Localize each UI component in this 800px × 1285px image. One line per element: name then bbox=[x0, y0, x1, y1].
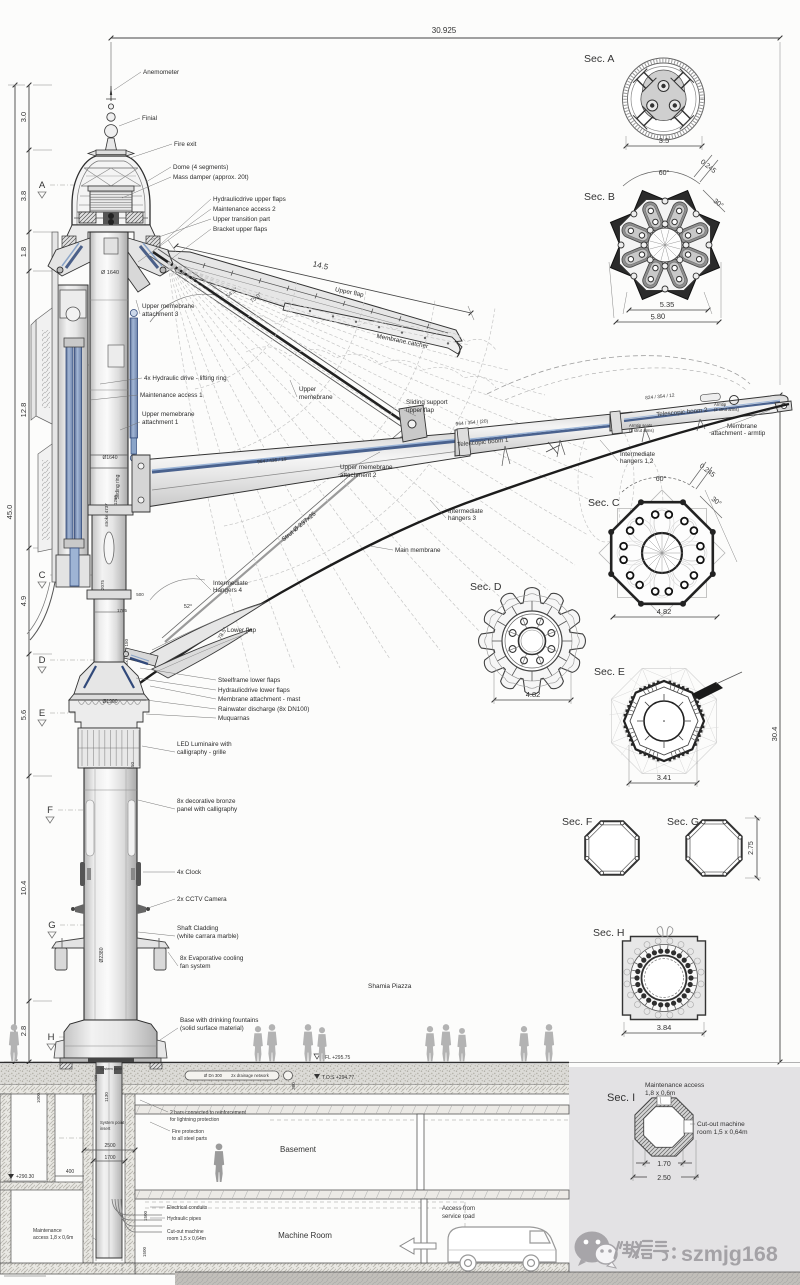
svg-text:45.0: 45.0 bbox=[5, 505, 14, 520]
svg-text:(2 strut arms): (2 strut arms) bbox=[629, 428, 654, 433]
svg-text:905: 905 bbox=[93, 1074, 98, 1081]
svg-text:2.8: 2.8 bbox=[19, 1026, 28, 1036]
svg-text:Upper memebrane: Upper memebrane bbox=[142, 303, 195, 310]
svg-text:Rainwater discharge (8x DN100): Rainwater discharge (8x DN100) bbox=[218, 706, 309, 713]
svg-text:attachment - armtip: attachment - armtip bbox=[711, 430, 766, 437]
svg-text:F: F bbox=[47, 805, 53, 816]
svg-text:Cut-out machine: Cut-out machine bbox=[167, 1229, 204, 1235]
svg-text:1500: 1500 bbox=[142, 1246, 147, 1257]
svg-text:10.4: 10.4 bbox=[19, 881, 28, 896]
svg-text:calligraphy - grille: calligraphy - grille bbox=[177, 749, 226, 756]
svg-text:2x drainage network: 2x drainage network bbox=[231, 1073, 270, 1078]
svg-text:room 1,5 x 0,64m: room 1,5 x 0,64m bbox=[167, 1236, 206, 1242]
svg-text:Shaft Cladding: Shaft Cladding bbox=[177, 925, 219, 932]
svg-text:fan system: fan system bbox=[180, 963, 210, 970]
svg-text:+290.30: +290.30 bbox=[16, 1174, 34, 1180]
svg-text:memebrane: memebrane bbox=[299, 394, 333, 401]
svg-text:insert: insert bbox=[100, 1126, 111, 1131]
svg-text:Hydraulicdrive upper flaps: Hydraulicdrive upper flaps bbox=[213, 196, 286, 203]
svg-text:4.82: 4.82 bbox=[526, 690, 541, 699]
svg-text:Hangers 4: Hangers 4 bbox=[213, 587, 243, 594]
svg-text:Sec. B: Sec. B bbox=[584, 191, 615, 203]
svg-text:12.8: 12.8 bbox=[19, 403, 28, 418]
svg-text:1,8 x 0,6m: 1,8 x 0,6m bbox=[645, 1090, 675, 1097]
svg-text:Upper: Upper bbox=[299, 386, 316, 393]
svg-text:60°: 60° bbox=[659, 169, 670, 177]
svg-text:52°: 52° bbox=[184, 604, 192, 610]
svg-text:5.35: 5.35 bbox=[660, 300, 675, 309]
svg-text:Steelframe lower flaps: Steelframe lower flaps bbox=[218, 677, 280, 684]
svg-text:panel with calligraphy: panel with calligraphy bbox=[177, 806, 238, 813]
svg-text:Maintenance access: Maintenance access bbox=[645, 1082, 705, 1089]
svg-text:Electrical conduits: Electrical conduits bbox=[167, 1205, 208, 1211]
svg-text:Hydraulicdrive lower flaps: Hydraulicdrive lower flaps bbox=[218, 687, 290, 694]
svg-text:attachment 2: attachment 2 bbox=[340, 472, 377, 479]
svg-text:stroke 4737: stroke 4737 bbox=[104, 503, 109, 527]
svg-text:2.50: 2.50 bbox=[657, 1175, 671, 1182]
svg-text:Maintenance access 2: Maintenance access 2 bbox=[213, 206, 276, 213]
svg-text:Lower flap: Lower flap bbox=[227, 627, 257, 634]
svg-text:(solid surface material): (solid surface material) bbox=[180, 1025, 244, 1032]
svg-text:C: C bbox=[39, 570, 46, 581]
svg-text:A: A bbox=[39, 180, 46, 191]
svg-text:Machine Room: Machine Room bbox=[278, 1231, 332, 1240]
svg-text:1.8: 1.8 bbox=[19, 247, 28, 257]
svg-text:Upper transition part: Upper transition part bbox=[213, 216, 270, 223]
svg-text:Ø Dn 300: Ø Dn 300 bbox=[204, 1073, 223, 1078]
svg-text:1700: 1700 bbox=[104, 1155, 115, 1161]
svg-text:1.70: 1.70 bbox=[657, 1161, 671, 1168]
svg-text:5.6: 5.6 bbox=[19, 710, 28, 720]
svg-text:T.O.S +294.77: T.O.S +294.77 bbox=[322, 1075, 354, 1081]
svg-text:3.8: 3.8 bbox=[19, 191, 28, 201]
svg-text:4x Hydraulic drive - lifting r: 4x Hydraulic drive - lifting ring bbox=[144, 375, 227, 382]
svg-text:30.4: 30.4 bbox=[770, 727, 779, 742]
svg-text:H: H bbox=[48, 1032, 55, 1043]
svg-text:D: D bbox=[39, 655, 46, 666]
svg-text:400: 400 bbox=[66, 1169, 75, 1175]
svg-text:Maintenance: Maintenance bbox=[33, 1228, 62, 1234]
svg-text:Sec. D: Sec. D bbox=[470, 581, 502, 593]
svg-text:Ø 1640: Ø 1640 bbox=[101, 270, 119, 276]
svg-text:3.41: 3.41 bbox=[657, 773, 672, 782]
svg-text:Sec. C: Sec. C bbox=[588, 497, 620, 509]
svg-text:room 1,5 x 0,64m: room 1,5 x 0,64m bbox=[697, 1129, 748, 1136]
svg-text:Intermediate: Intermediate bbox=[448, 508, 483, 515]
svg-text:5.80: 5.80 bbox=[650, 312, 665, 322]
svg-text:Sec. H: Sec. H bbox=[593, 927, 625, 939]
svg-text:Mass damper (approx. 20t): Mass damper (approx. 20t) bbox=[173, 174, 249, 181]
svg-text:FFL +295.75: FFL +295.75 bbox=[322, 1055, 351, 1061]
svg-text:4.82: 4.82 bbox=[657, 607, 672, 616]
svg-text:2075: 2075 bbox=[100, 579, 105, 590]
svg-text:Fire protection: Fire protection bbox=[172, 1129, 204, 1135]
svg-text:Cut-out machine: Cut-out machine bbox=[697, 1121, 745, 1128]
svg-text:G: G bbox=[48, 920, 55, 931]
svg-text:Base with drinking fountains: Base with drinking fountains bbox=[180, 1017, 258, 1024]
svg-text:Upper memebrane: Upper memebrane bbox=[142, 411, 195, 418]
svg-text:szmjg168: szmjg168 bbox=[681, 1242, 778, 1266]
svg-text:Intermediate: Intermediate bbox=[620, 451, 655, 458]
svg-text:Bracket upper flaps: Bracket upper flaps bbox=[213, 226, 267, 233]
svg-text:Shamia Piazza: Shamia Piazza bbox=[368, 983, 412, 990]
svg-text:2 bars connected to reinforcem: 2 bars connected to reinforcement bbox=[170, 1110, 246, 1116]
svg-text:Membrane attachment - mast: Membrane attachment - mast bbox=[218, 696, 300, 703]
svg-text:1765: 1765 bbox=[117, 608, 128, 613]
svg-text:hangers 1,2: hangers 1,2 bbox=[620, 458, 654, 465]
svg-text:service road: service road bbox=[442, 1214, 475, 1220]
svg-text:3.84: 3.84 bbox=[657, 1023, 672, 1032]
svg-text:3.0: 3.0 bbox=[19, 112, 28, 122]
svg-text:1500: 1500 bbox=[143, 1210, 148, 1221]
svg-text:Access from: Access from bbox=[442, 1206, 475, 1212]
svg-text:Ø2380: Ø2380 bbox=[99, 947, 105, 962]
svg-text:1130: 1130 bbox=[104, 1092, 109, 1102]
svg-text:to all steel parts: to all steel parts bbox=[172, 1136, 208, 1142]
svg-text:Sec. E: Sec. E bbox=[594, 666, 625, 678]
svg-text:Basement: Basement bbox=[280, 1145, 317, 1154]
svg-text:LED Luminaire with: LED Luminaire with bbox=[177, 741, 232, 748]
svg-text:30.925: 30.925 bbox=[432, 26, 457, 35]
svg-text:500: 500 bbox=[136, 592, 144, 597]
svg-text:Sliding ring: Sliding ring bbox=[115, 474, 121, 499]
svg-text:System point: System point bbox=[100, 1067, 123, 1071]
svg-text:8x decorative bronze: 8x decorative bronze bbox=[177, 798, 236, 805]
svg-text:E: E bbox=[39, 708, 45, 719]
svg-text:2500: 2500 bbox=[104, 1143, 115, 1149]
svg-text:4.9: 4.9 bbox=[19, 596, 28, 606]
svg-text:hangers 3: hangers 3 bbox=[448, 515, 477, 522]
svg-text:attachment 1: attachment 1 bbox=[142, 419, 179, 426]
svg-text:(2 strut arms): (2 strut arms) bbox=[714, 407, 739, 412]
svg-text:for lightning protection: for lightning protection bbox=[170, 1117, 219, 1123]
svg-text:3.5: 3.5 bbox=[659, 136, 669, 145]
svg-text:4x Clock: 4x Clock bbox=[177, 869, 202, 876]
svg-text:System point: System point bbox=[100, 1120, 125, 1125]
svg-text:2.75: 2.75 bbox=[748, 841, 755, 855]
svg-text:Anemometer: Anemometer bbox=[143, 69, 179, 76]
svg-text:Sec. I: Sec. I bbox=[607, 1092, 635, 1104]
svg-text:Fire exit: Fire exit bbox=[174, 141, 197, 148]
svg-text:Membrane: Membrane bbox=[727, 423, 758, 430]
svg-text:Sec. F: Sec. F bbox=[562, 816, 592, 828]
svg-text:(white carrara marble): (white carrara marble) bbox=[177, 933, 239, 940]
svg-text:1000: 1000 bbox=[36, 1092, 41, 1103]
svg-text:Ø1640: Ø1640 bbox=[102, 455, 117, 461]
svg-text:Hydraulic pipes: Hydraulic pipes bbox=[167, 1216, 202, 1222]
svg-text:Sec. A: Sec. A bbox=[584, 53, 614, 65]
svg-text:2x CCTV Camera: 2x CCTV Camera bbox=[177, 896, 227, 903]
svg-text:attachment 3: attachment 3 bbox=[142, 311, 179, 318]
svg-text:Ø1900: Ø1900 bbox=[102, 699, 117, 705]
svg-text:Sec. G: Sec. G bbox=[667, 816, 699, 828]
svg-text:Muquarnas: Muquarnas bbox=[218, 715, 250, 722]
svg-text:8x Evaporative cooling: 8x Evaporative cooling bbox=[180, 955, 244, 962]
svg-text:access 1,8 x 0,6m: access 1,8 x 0,6m bbox=[33, 1235, 73, 1241]
svg-text:Dome (4 segments): Dome (4 segments) bbox=[173, 164, 228, 171]
svg-text:Main membrane: Main membrane bbox=[395, 547, 441, 554]
svg-text:Finial: Finial bbox=[142, 115, 157, 122]
svg-text:380: 380 bbox=[291, 1082, 296, 1090]
svg-text:Maintenance access 1: Maintenance access 1 bbox=[140, 392, 203, 399]
svg-text:Sliding support: Sliding support bbox=[406, 399, 448, 406]
svg-text:Intermediate: Intermediate bbox=[213, 580, 248, 587]
svg-text:60°: 60° bbox=[656, 475, 667, 483]
svg-text:Upper memebrane: Upper memebrane bbox=[340, 464, 393, 471]
